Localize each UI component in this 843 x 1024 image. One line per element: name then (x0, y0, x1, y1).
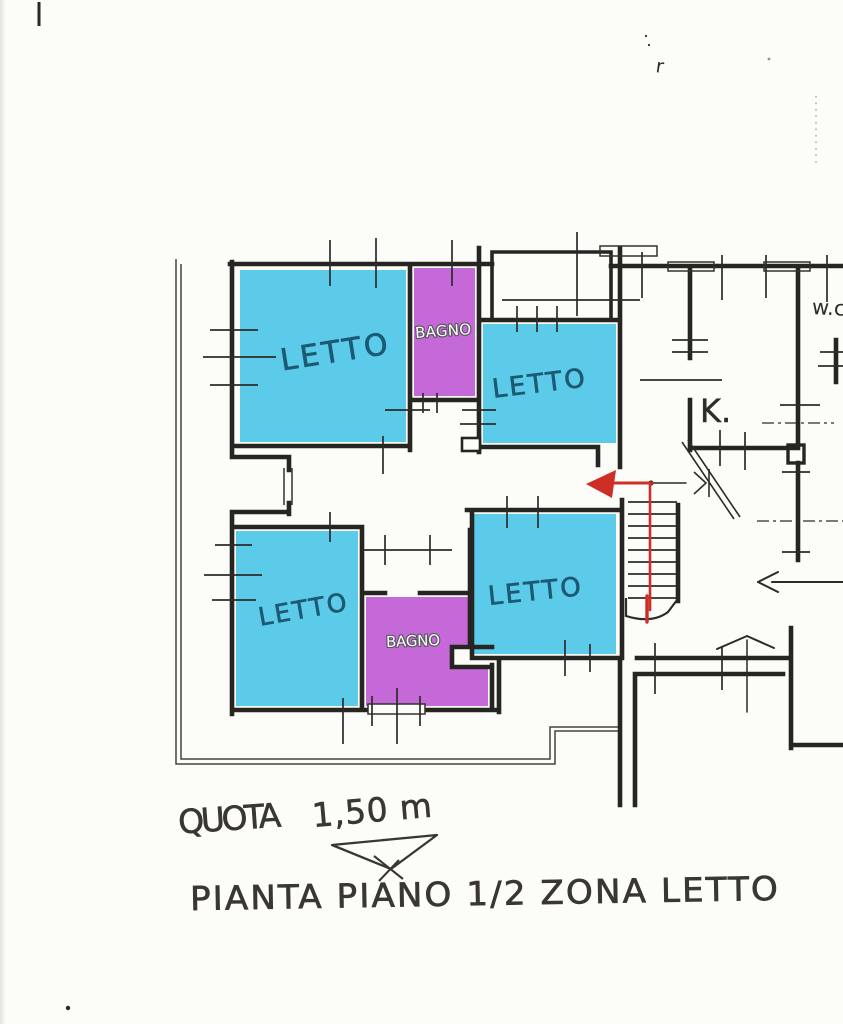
floor-plan-drawing: r LETTO BAGNO LETTO K. w.c LETTO BAGNO L… (0, 0, 843, 1024)
room-label-kitchen: K. (700, 392, 731, 430)
quota-label: QUOTA (177, 795, 287, 841)
direction-arrow-left-icon (758, 572, 843, 592)
scanned-floor-plan-page: r LETTO BAGNO LETTO K. w.c LETTO BAGNO L… (0, 0, 843, 1024)
room-label-wc: w.c (811, 295, 843, 321)
stairs (626, 502, 677, 619)
handwritten-annotations: QUOTA 1,50 m PIANTA PIANO 1/2 ZONA LETTO (177, 786, 780, 919)
room-label-bagno-bottom: BAGNO (386, 631, 443, 651)
caption: PIANTA PIANO 1/2 ZONA LETTO (190, 869, 781, 918)
quota-value: 1,50 m (310, 786, 435, 835)
stray-mark-glyph: r (654, 55, 665, 78)
scan-edge-shadow (0, 0, 6, 1024)
level-triangle-icon (332, 835, 437, 881)
